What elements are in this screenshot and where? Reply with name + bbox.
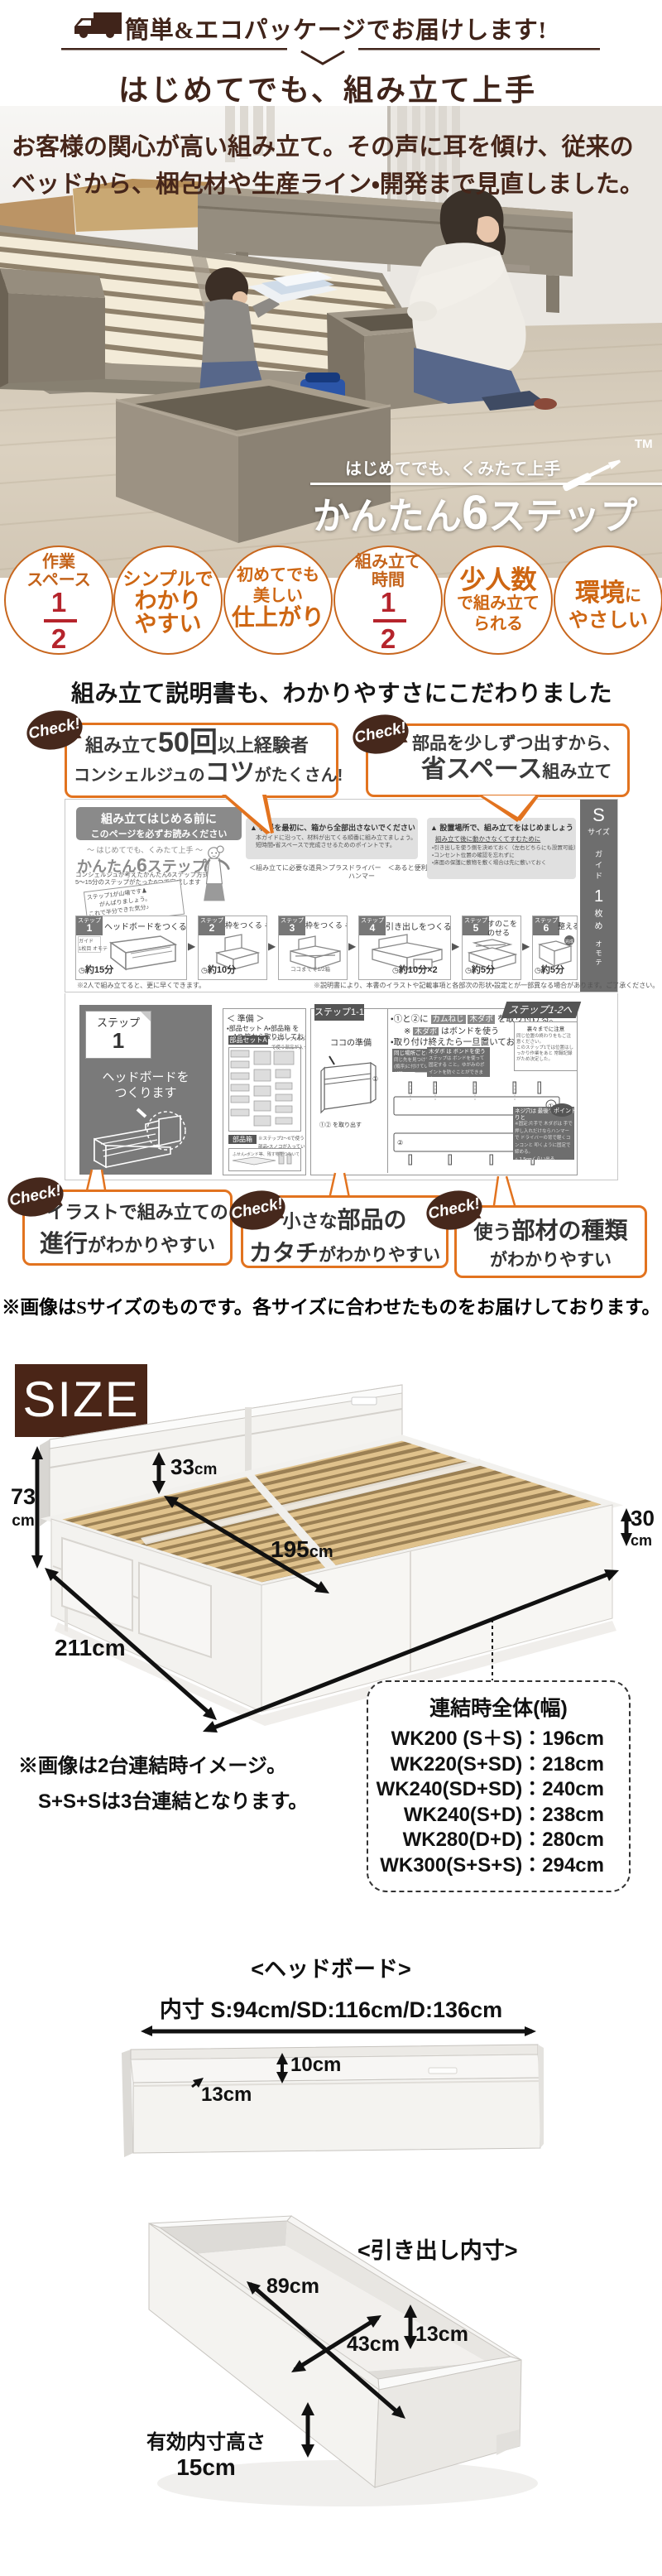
svg-text:ふせん・ボンド等、残す物をつないでおきましょう: ふせん・ボンド等、残す物をつないでおきましょう	[233, 1151, 299, 1157]
svg-text:②: ②	[397, 1139, 403, 1146]
svg-text:①: ①	[372, 1075, 378, 1083]
svg-text:TM: TM	[635, 437, 653, 451]
svg-text:①② を取り出す: ①② を取り出す	[319, 1121, 362, 1128]
svg-text:完成: 完成	[565, 939, 573, 944]
svg-text:ポイント: ポイント	[554, 1108, 574, 1114]
